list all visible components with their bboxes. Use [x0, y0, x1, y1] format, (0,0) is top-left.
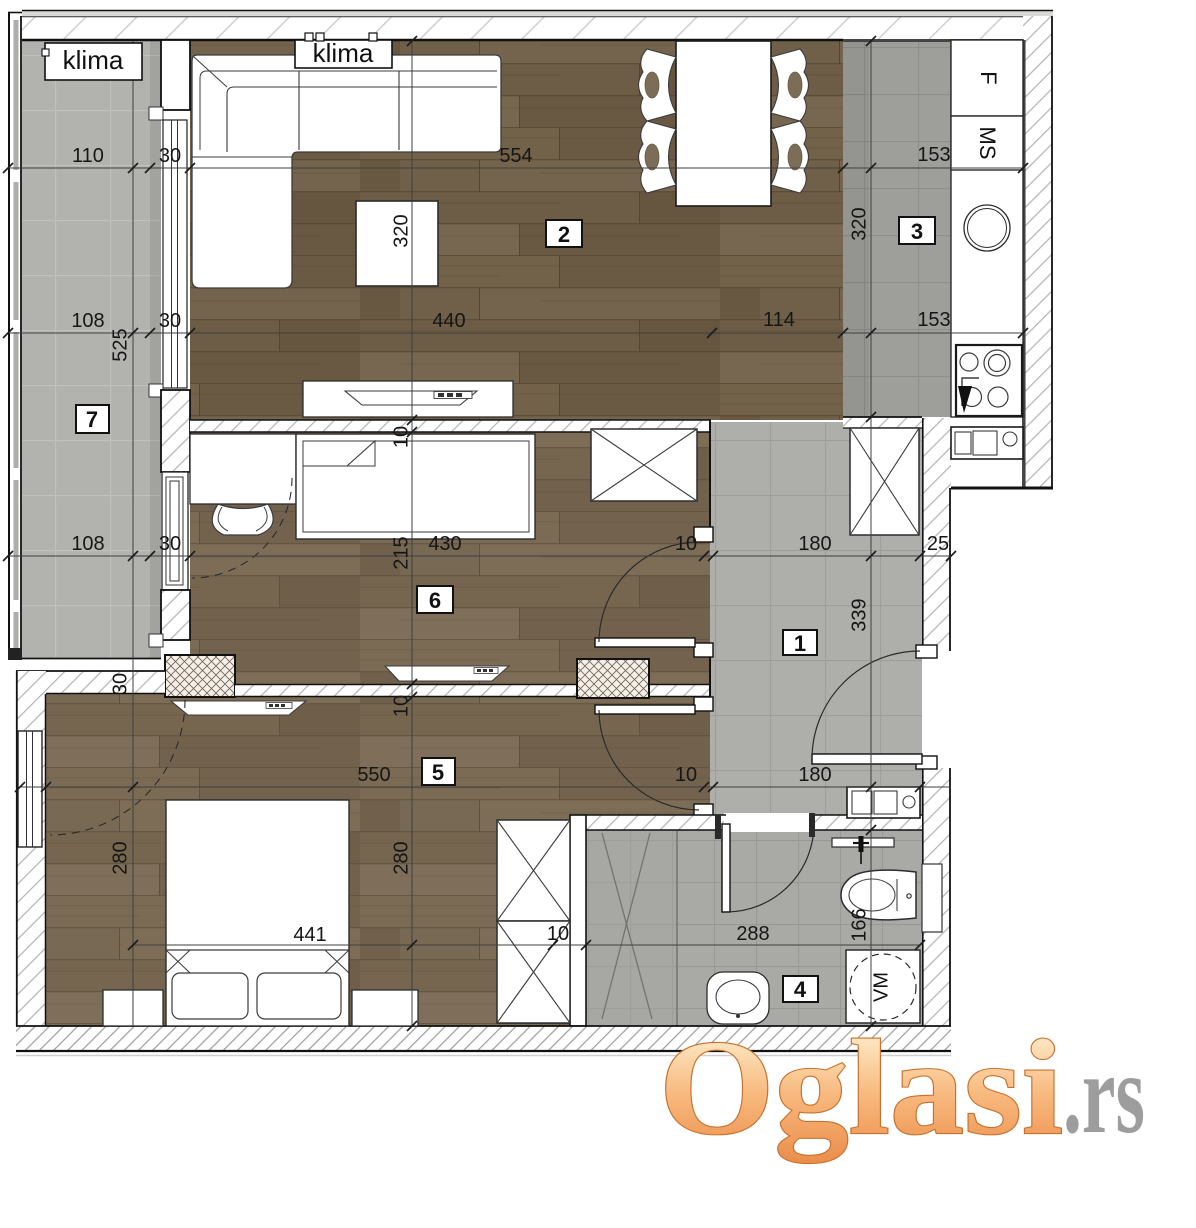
svg-text:4: 4 [794, 977, 807, 1002]
svg-text:215: 215 [390, 536, 412, 569]
svg-text:F: F [976, 71, 1001, 84]
svg-text:.rs: .rs [1063, 1030, 1145, 1157]
svg-text:2: 2 [558, 222, 570, 247]
svg-text:166: 166 [848, 908, 870, 941]
svg-text:VM: VM [870, 972, 892, 1002]
svg-text:339: 339 [848, 598, 870, 631]
svg-text:30: 30 [159, 533, 181, 555]
svg-text:klima: klima [313, 38, 374, 68]
svg-text:110: 110 [72, 145, 104, 167]
svg-text:10: 10 [675, 764, 697, 786]
svg-text:108: 108 [71, 533, 104, 555]
svg-text:320: 320 [390, 214, 412, 247]
svg-text:180: 180 [798, 533, 831, 555]
svg-text:430: 430 [428, 533, 461, 555]
svg-text:280: 280 [109, 841, 131, 874]
svg-text:25: 25 [927, 533, 949, 555]
svg-text:153: 153 [917, 309, 950, 331]
svg-text:153: 153 [917, 144, 950, 166]
svg-text:280: 280 [390, 841, 412, 874]
svg-text:Oglasi: Oglasi [659, 1013, 1063, 1163]
svg-text:30: 30 [159, 145, 181, 167]
svg-text:108: 108 [71, 310, 104, 332]
svg-text:114: 114 [763, 309, 795, 331]
svg-text:1: 1 [794, 631, 806, 656]
svg-text:3: 3 [911, 219, 923, 244]
svg-text:441: 441 [293, 924, 326, 946]
svg-text:7: 7 [86, 407, 98, 432]
svg-text:6: 6 [429, 588, 441, 613]
svg-text:180: 180 [798, 764, 831, 786]
svg-text:10: 10 [547, 923, 569, 945]
svg-text:10: 10 [390, 426, 412, 448]
svg-text:klima: klima [63, 45, 124, 75]
svg-text:30: 30 [159, 310, 181, 332]
svg-text:10: 10 [675, 533, 697, 555]
svg-text:554: 554 [499, 145, 532, 167]
svg-text:MS: MS [975, 127, 1000, 160]
svg-text:10: 10 [390, 695, 412, 717]
svg-text:5: 5 [432, 760, 444, 785]
svg-text:440: 440 [432, 310, 465, 332]
svg-text:288: 288 [736, 923, 769, 945]
svg-text:320: 320 [848, 207, 870, 240]
svg-text:550: 550 [357, 764, 390, 786]
svg-text:525: 525 [109, 328, 131, 361]
svg-text:30: 30 [109, 673, 131, 695]
